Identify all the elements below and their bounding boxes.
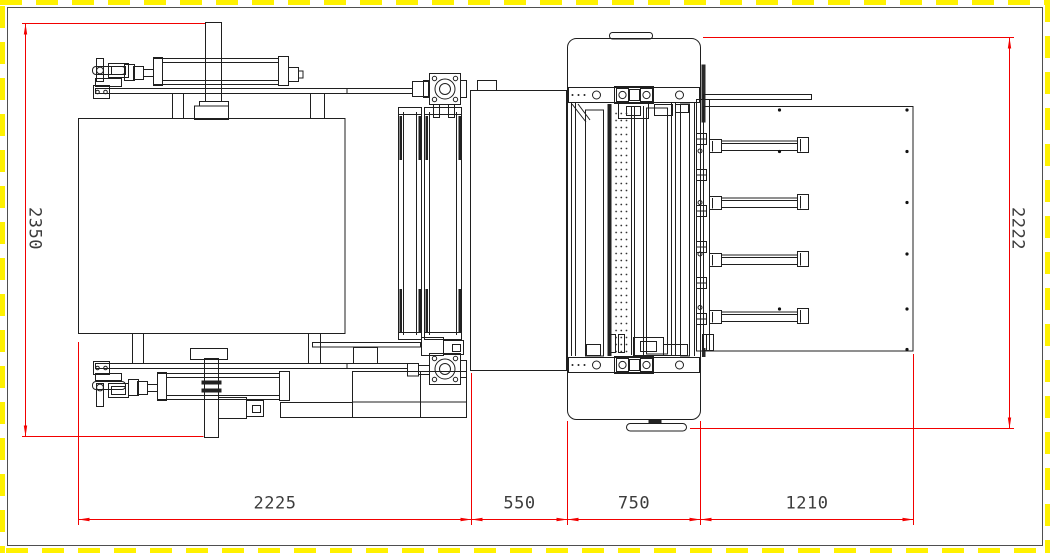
dim-label-left-height: 2350 — [25, 207, 45, 250]
nip-roller-right — [425, 108, 462, 340]
dim-label-2225: 2225 — [254, 494, 297, 514]
dim-label-550: 550 — [503, 494, 535, 514]
anilox-assembly — [572, 103, 695, 356]
dim-bottom-chain: 2225 550 750 1210 — [79, 342, 914, 525]
dim-2350: 2350 — [22, 24, 205, 437]
drawing-canvas: 2350 2222 2225 550 750 1210 — [0, 0, 1050, 553]
print-unit — [568, 33, 706, 432]
table-bar-4 — [710, 309, 809, 324]
bottom-cylinder — [93, 372, 290, 407]
delivery-table — [697, 95, 914, 352]
table-bar-1 — [710, 138, 809, 153]
corner-bracket-top — [94, 86, 110, 99]
nip-roller-left — [399, 108, 422, 340]
bottom-shaft-column — [191, 349, 264, 438]
handwheel-top — [424, 74, 467, 105]
unit-bottom-plate — [569, 357, 700, 374]
table-bar-3 — [710, 252, 809, 267]
roller-section — [399, 74, 467, 385]
top-cylinder — [93, 57, 304, 87]
unit-top-plate — [569, 87, 700, 104]
unit-foot-tray — [627, 424, 687, 432]
dim-label-right-height: 2222 — [1008, 207, 1028, 250]
bridge-section — [471, 81, 567, 371]
gearbox-bottom — [422, 338, 464, 356]
top-shaft-column — [195, 23, 229, 120]
base-skirt — [281, 372, 467, 418]
unwind-body — [79, 119, 346, 334]
border-frame — [0, 0, 1050, 553]
dim-label-1210: 1210 — [786, 494, 829, 514]
handwheel-bottom — [430, 354, 467, 385]
rail-clips — [697, 134, 707, 325]
dim-label-750: 750 — [618, 494, 650, 514]
dim-2222: 2222 — [690, 38, 1028, 429]
table-bar-2 — [710, 195, 809, 210]
unwind-section — [79, 23, 467, 438]
